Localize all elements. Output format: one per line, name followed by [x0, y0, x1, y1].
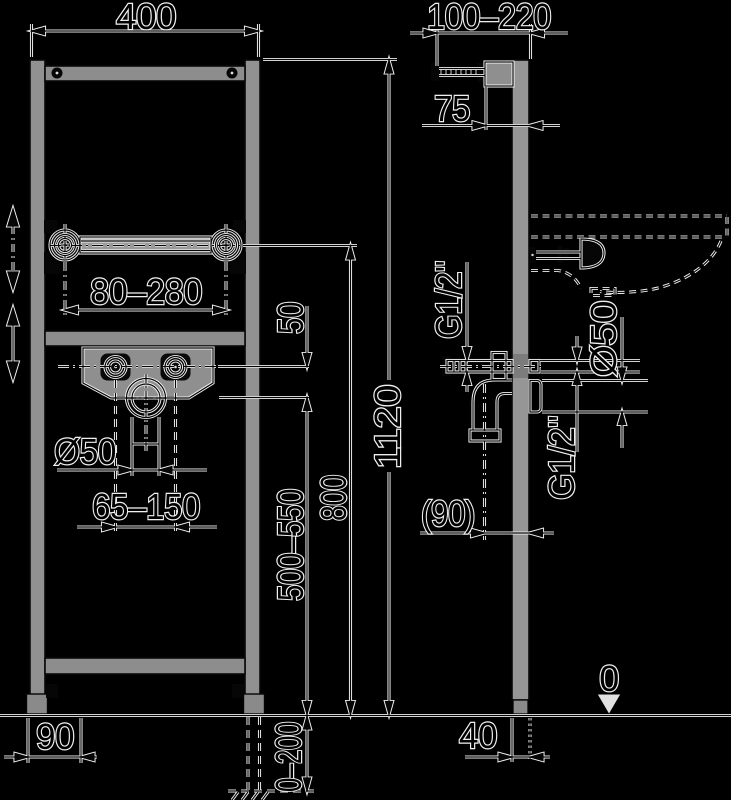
- side-foot: [513, 700, 528, 714]
- bottom-crossbar: [45, 658, 245, 674]
- top-crossbar: [45, 66, 245, 81]
- dim-inlet-thread-wall: G1/2": [541, 416, 582, 500]
- dim-stud-range: 100–220: [427, 0, 551, 37]
- dim-floor-level: 0: [599, 658, 619, 699]
- dim-carrier-height: 800: [313, 475, 354, 521]
- dim-floor-adjust: 0–200: [268, 722, 309, 792]
- dim-carrier-range: 80–280: [90, 271, 202, 312]
- dim-drain-pipe-dia: Ø50: [54, 431, 116, 472]
- right-foot-knob: [232, 684, 244, 698]
- dim-inlet-thread-front: G1/2": [428, 261, 469, 339]
- left-foot-knob: [46, 684, 58, 698]
- dim-base-depth: 90: [36, 716, 74, 757]
- technical-drawing-canvas: 400 100–220 80–280 75 Ø50 65–150 90 (90)…: [0, 0, 731, 800]
- washbasin-frame-drawing: 400 100–220 80–280 75 Ø50 65–150 90 (90)…: [0, 0, 731, 800]
- left-post: [30, 60, 45, 715]
- dim-profile-depth: 40: [459, 715, 497, 756]
- right-post: [245, 60, 260, 715]
- dim-outlet-offset: (90): [421, 493, 475, 534]
- dim-tap-spacing: 65–150: [92, 486, 200, 527]
- dim-frame-width: 400: [116, 0, 176, 37]
- top-bracket: [485, 62, 513, 86]
- dim-frame-height: 1120: [367, 385, 408, 469]
- dim-offset-inlet-drain: 50: [270, 302, 311, 334]
- side-post: [512, 60, 529, 700]
- dim-drain-height: 500–550: [270, 489, 311, 601]
- dim-outlet-dia: Ø50: [583, 301, 624, 377]
- left-foot: [27, 694, 48, 714]
- right-foot: [244, 694, 265, 714]
- middle-crossbar: [45, 331, 245, 346]
- background: [0, 0, 731, 800]
- dim-bracket-offset: 75: [434, 88, 470, 129]
